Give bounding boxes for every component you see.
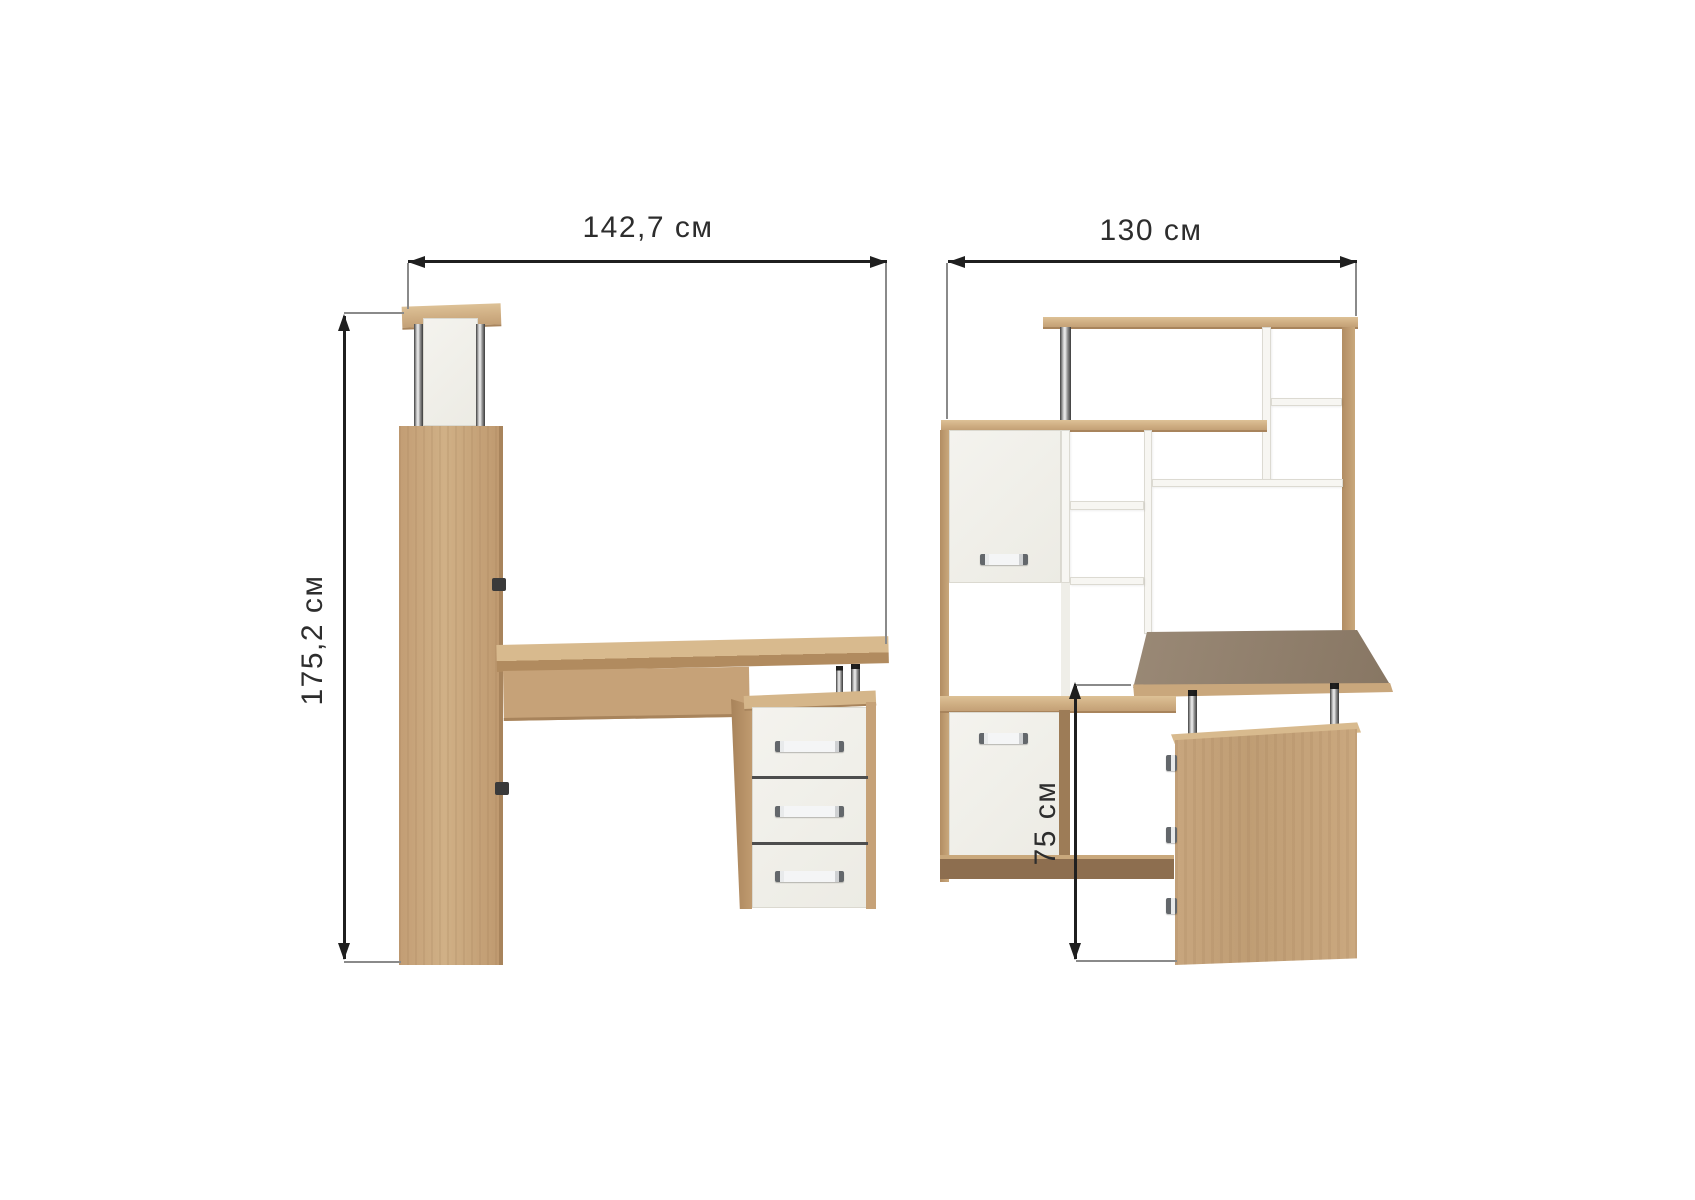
front-width-extension-right xyxy=(885,263,887,644)
side-width-extension-left xyxy=(946,263,948,419)
side-shelf-upper-right xyxy=(1271,398,1342,406)
front-cabinet-clip-bottom xyxy=(495,782,509,795)
side-width-arrowhead-left xyxy=(948,256,965,268)
front-drawer-handle-2 xyxy=(775,806,844,817)
side-middle-upright xyxy=(1144,430,1152,634)
side-left-frame-panel xyxy=(940,430,949,882)
furniture-dimensions-diagram: 142,7 см 175,2 см xyxy=(0,0,1695,1200)
front-height-dimension-label: 175,2 см xyxy=(298,574,328,705)
side-lower-cabinet-handle xyxy=(979,733,1028,744)
side-drawer-handle-edge-2 xyxy=(1166,827,1177,843)
front-height-arrowhead-bottom xyxy=(338,943,350,960)
front-height-tick-top xyxy=(344,312,404,314)
side-desk-height-dimension-label: 75 см xyxy=(1031,781,1061,866)
side-width-dimension-line xyxy=(948,260,1357,263)
side-desk-height-dimension-line xyxy=(1074,684,1077,959)
side-right-frame-panel xyxy=(1342,327,1355,633)
side-cubby-shelf-upper xyxy=(1070,501,1144,510)
front-height-tick-bottom xyxy=(344,961,401,963)
side-desk-height-arrowhead-bottom xyxy=(1069,943,1081,960)
side-pedestal-panel xyxy=(1175,727,1357,965)
side-divider-upright xyxy=(1061,430,1070,583)
side-upper-cabinet-handle xyxy=(980,554,1028,565)
front-drawer-handle-1 xyxy=(775,741,844,752)
front-tall-cabinet-panel xyxy=(399,426,503,965)
side-white-upright-right xyxy=(1262,327,1271,484)
front-cabinet-clip-top xyxy=(492,578,506,591)
front-chrome-post-right xyxy=(476,324,485,428)
front-width-dimension-line xyxy=(408,260,887,263)
side-view: 130 см 75 см xyxy=(900,0,1695,1200)
front-pedestal-side-panel xyxy=(731,699,752,909)
side-desk-height-tick-bottom xyxy=(1076,960,1177,962)
front-desk-apron xyxy=(503,667,750,721)
side-top-shelf-board xyxy=(1043,317,1358,329)
front-width-arrowhead-left xyxy=(408,256,425,268)
side-lower-shelf-board xyxy=(940,696,1176,713)
front-drawer-gap-1 xyxy=(752,776,868,779)
side-shelf-right-long xyxy=(1152,479,1343,487)
front-height-dimension-line xyxy=(343,316,346,959)
front-desktop xyxy=(496,636,889,672)
side-drawer-handle-edge-1 xyxy=(1166,755,1177,771)
front-drawer-gap-2 xyxy=(752,842,868,845)
front-height-arrowhead-top xyxy=(338,314,350,331)
front-width-dimension-label: 142,7 см xyxy=(582,213,713,243)
side-desk-height-tick-top xyxy=(1076,684,1131,686)
side-drawer-handle-edge-3 xyxy=(1166,898,1177,914)
side-width-extension-right xyxy=(1355,263,1357,316)
front-width-extension-left xyxy=(407,263,409,309)
front-chrome-post-left xyxy=(414,324,423,428)
side-cubby-shelf-lower xyxy=(1070,577,1144,585)
side-width-dimension-label: 130 см xyxy=(1099,216,1202,246)
front-top-back-panel xyxy=(423,318,478,426)
front-pedestal-right-edge xyxy=(866,702,876,909)
front-view: 142,7 см 175,2 см xyxy=(0,0,900,1200)
side-chrome-pole xyxy=(1060,327,1071,421)
front-drawer-handle-3 xyxy=(775,871,844,882)
